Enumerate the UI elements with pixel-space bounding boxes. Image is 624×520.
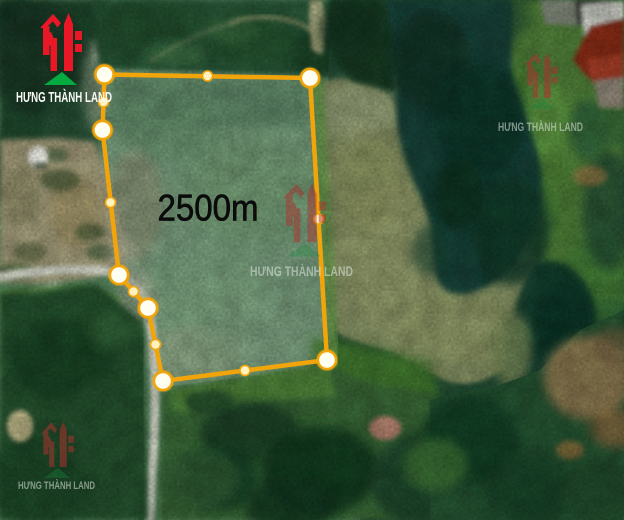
svg-text:2500m: 2500m [158,187,259,229]
svg-text:HƯNG THÀNH LAND: HƯNG THÀNH LAND [498,121,583,134]
svg-text:HƯNG THÀNH LAND: HƯNG THÀNH LAND [18,479,95,492]
svg-text:HƯNG THÀNH LAND: HƯNG THÀNH LAND [16,89,112,106]
svg-text:HƯNG THÀNH LAND: HƯNG THÀNH LAND [250,263,353,279]
